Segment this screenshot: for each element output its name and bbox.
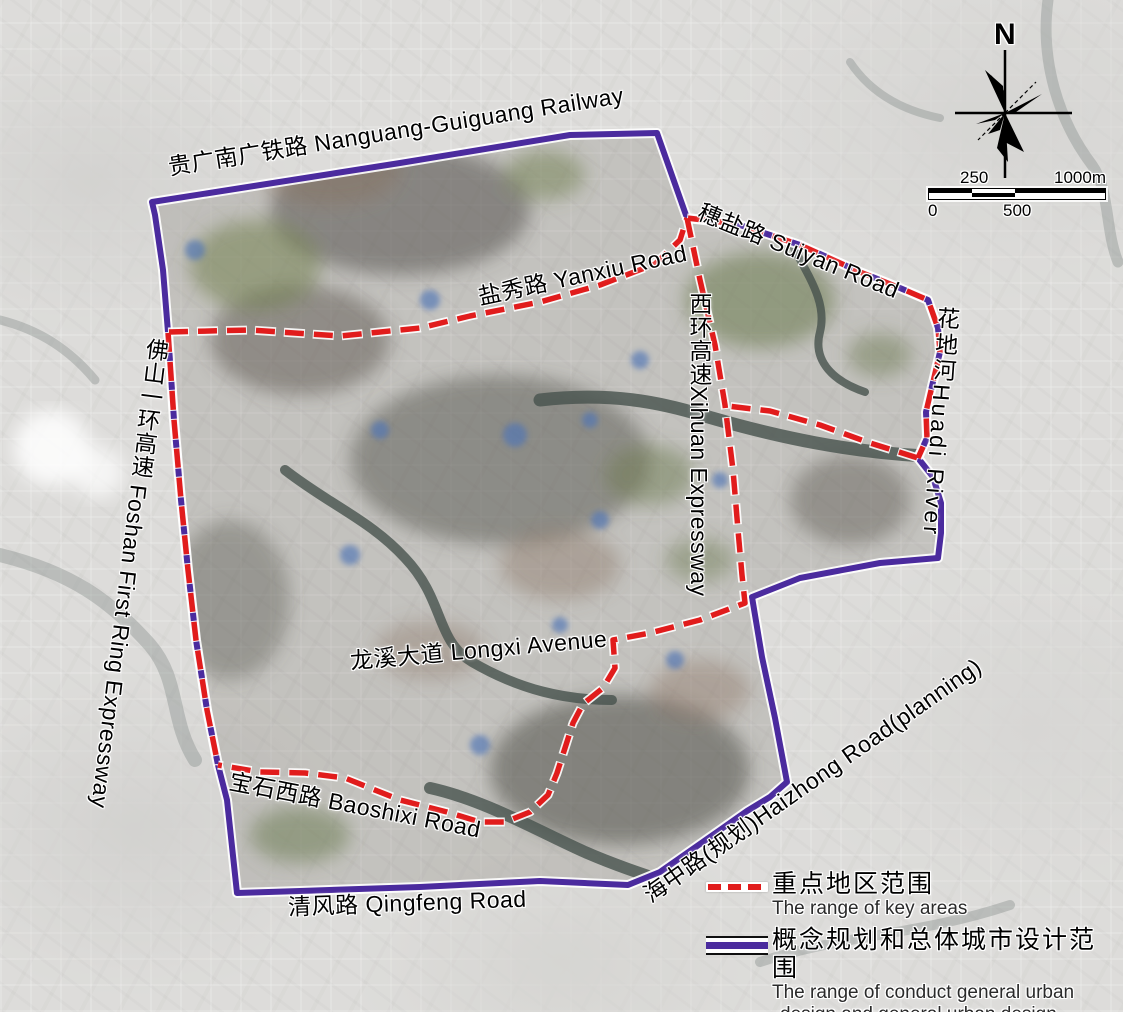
legend: 重点地区范围 The range of key areas 概念规划和总体城市设… [704, 870, 1122, 1012]
legend-item-key-areas: 重点地区范围 The range of key areas [704, 870, 1122, 920]
satellite-planning-map: N 250 1000m 0 500 贵广南广铁路 Nanguang-Guigua… [0, 0, 1123, 1012]
legend-design-range-en-2: design and general urban design [780, 1004, 1122, 1012]
legend-design-range-zh: 概念规划和总体城市设计范围 [772, 926, 1122, 982]
scale-tick-250: 250 [960, 168, 988, 188]
red-dashed-line-swatch [706, 882, 768, 892]
scale-tick-0: 0 [928, 201, 937, 221]
legend-key-areas-zh: 重点地区范围 [772, 870, 1122, 898]
scale-bar: 250 1000m 0 500 [928, 168, 1106, 220]
scale-tick-1000: 1000m [1054, 168, 1106, 188]
north-label: N [994, 18, 1016, 52]
purple-line-swatch [706, 936, 768, 955]
legend-item-design-range: 概念规划和总体城市设计范围 The range of conduct gener… [704, 926, 1122, 1012]
scale-tick-500: 500 [1003, 201, 1031, 221]
scale-bar-graphic [928, 188, 1106, 200]
legend-design-range-en-1: The range of conduct general urban [772, 982, 1122, 1004]
legend-key-areas-en: The range of key areas [772, 898, 1122, 920]
label-xihuan-expressway: 西环高速Xihuan Expressway [682, 292, 716, 622]
